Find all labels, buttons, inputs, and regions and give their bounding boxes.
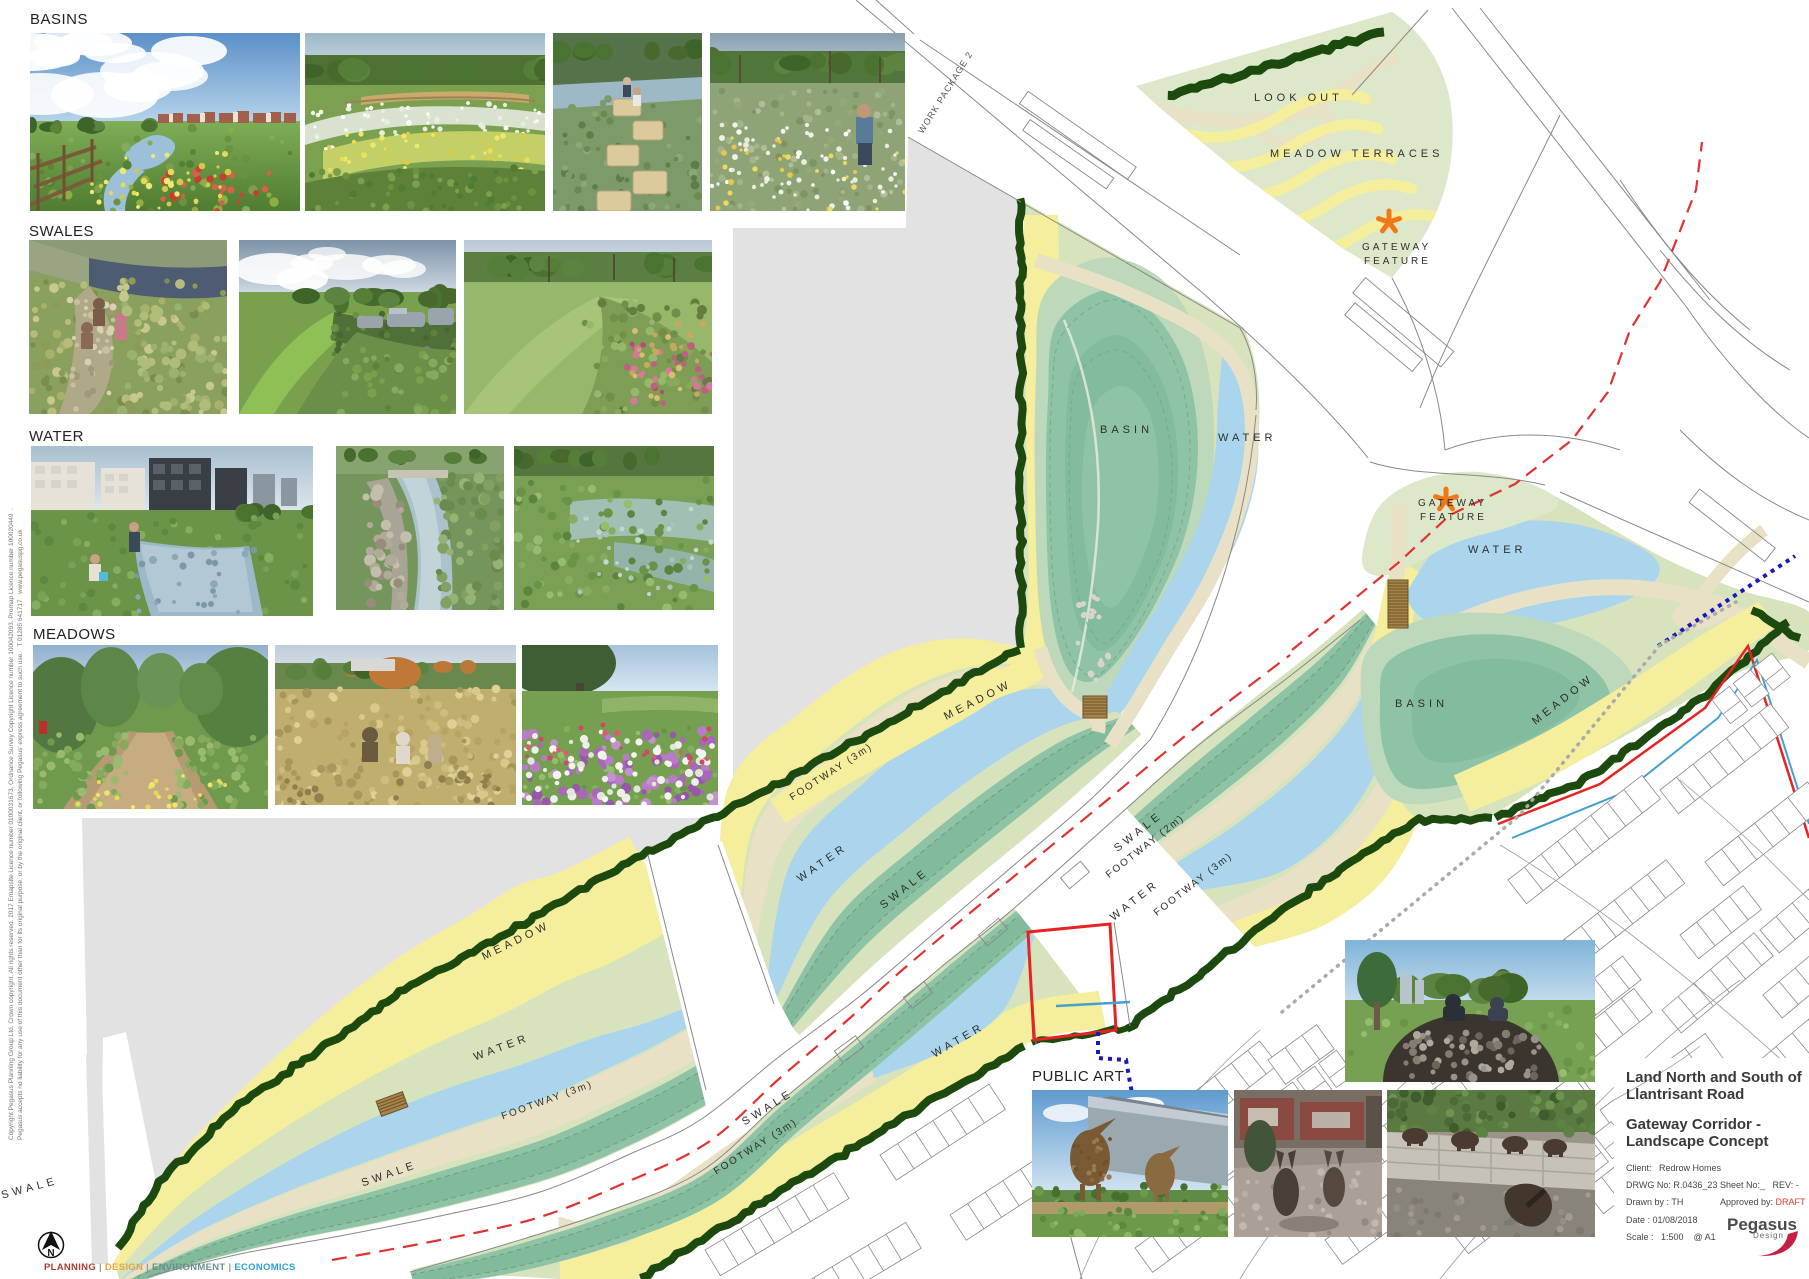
svg-text:N: N <box>47 1248 54 1259</box>
